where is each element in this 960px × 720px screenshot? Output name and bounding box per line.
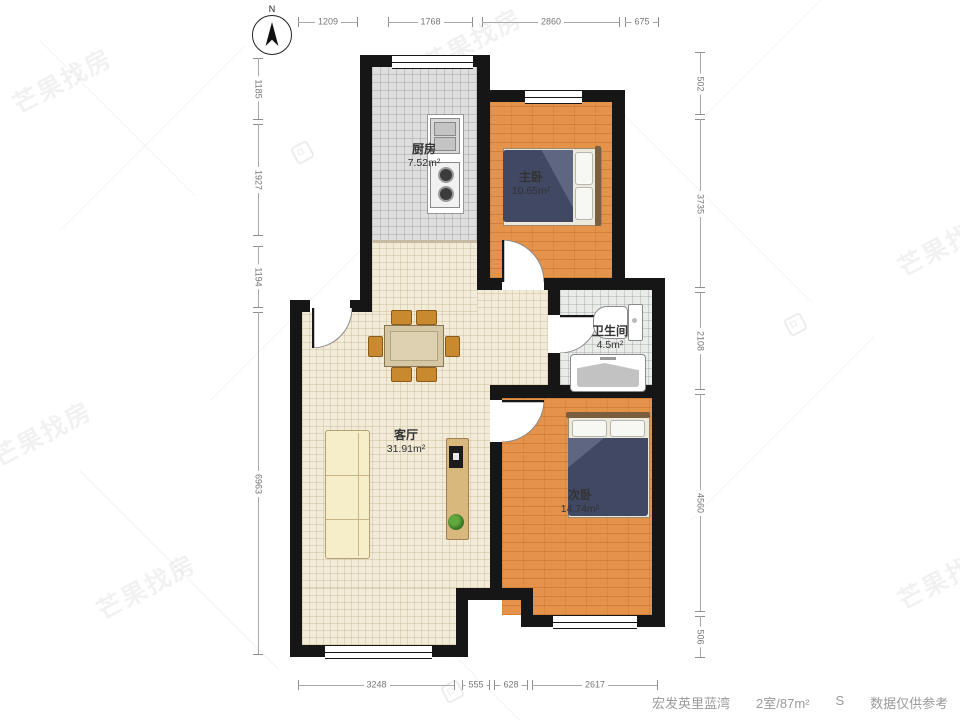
room-area: 10.65m² (489, 185, 573, 198)
room-label-kitchen: 厨房 7.52m² (382, 142, 466, 170)
wall (360, 55, 372, 312)
bathroom-door-opening (548, 315, 560, 353)
watermark-line (700, 0, 870, 121)
second-bedroom-window (553, 615, 637, 629)
unit-summary: 2室/87m² (756, 693, 809, 712)
kitchen-window (392, 55, 473, 69)
watermark-logo-icon (290, 140, 316, 166)
dim-left-2: 1927 (252, 124, 264, 236)
north-arrow-icon (264, 22, 281, 46)
community-name: 宏发英里蓝湾 (652, 693, 730, 712)
dining-chair (368, 336, 383, 357)
room-label-bathroom: 卫生间 4.5m² (568, 324, 652, 352)
room-area: 31.91m² (364, 443, 448, 456)
watermark-text: 芒果找房 (891, 202, 960, 284)
hallway-floor (372, 243, 477, 312)
master-window (525, 90, 582, 104)
pillow (610, 420, 645, 437)
dim-bottom-3: 628 (494, 679, 528, 691)
dim-right-5: 506 (694, 616, 706, 658)
plant-icon (448, 514, 464, 530)
dining-chair (445, 336, 460, 357)
watermark-line (690, 336, 875, 521)
master-door-arc (502, 240, 544, 282)
room-name: 次卧 (538, 488, 622, 503)
bathtub (570, 354, 646, 392)
watermark-text: 芒果找房 (6, 39, 118, 121)
dim-right-1: 502 (694, 52, 706, 115)
room-name: 卫生间 (568, 324, 652, 339)
dining-chair (416, 310, 437, 325)
room-name: 主卧 (489, 170, 573, 185)
kitchen-threshold (372, 240, 477, 243)
footer: 宏发英里蓝湾 2室/87m² S 数据仅供参考 (652, 693, 948, 712)
dim-left-4: 6963 (252, 312, 264, 655)
dim-left-1: 1185 (252, 58, 264, 120)
living-room-floor (302, 588, 456, 645)
floorplan-canvas: 芒果找房 芒果找房 芒果找房 芒果找房 芒果找房 芒果找房 芒果找房 N (0, 0, 960, 720)
dim-bottom-2: 555 (462, 679, 490, 691)
room-label-master: 主卧 10.65m² (489, 170, 573, 198)
room-area: 7.52m² (382, 157, 466, 170)
watermark-text: 芒果找房 (90, 545, 202, 627)
room-name: 厨房 (382, 142, 466, 157)
compass-circle-icon (252, 15, 292, 55)
dim-top-4: 675 (625, 16, 659, 28)
living-window (325, 645, 432, 659)
dim-right-4: 4560 (694, 394, 706, 612)
room-label-second-bedroom: 次卧 14.74m² (538, 488, 622, 516)
room-name: 客厅 (364, 428, 448, 443)
dim-right-3: 2108 (694, 292, 706, 390)
dining-table (384, 325, 444, 367)
room-label-living: 客厅 31.91m² (364, 428, 448, 456)
room-area: 4.5m² (568, 339, 652, 352)
dim-left-3: 1194 (252, 246, 264, 308)
second-bedroom-door-opening (490, 400, 502, 442)
wall (290, 300, 302, 657)
entrance-door-arc (312, 308, 352, 348)
second-bedroom-door-arc (502, 400, 544, 442)
second-bed-headboard (566, 412, 650, 418)
dim-right-2: 3735 (694, 119, 706, 288)
dining-chair (391, 310, 412, 325)
pillow (575, 187, 593, 220)
tv-icon (449, 446, 463, 468)
watermark-logo-icon (783, 312, 809, 338)
orientation-label: S (835, 693, 844, 712)
watermark-line (79, 470, 278, 669)
disclaimer-text: 数据仅供参考 (870, 693, 948, 712)
room-area: 14.74m² (538, 503, 622, 516)
dim-top-3: 2860 (482, 16, 620, 28)
pillow (575, 152, 593, 185)
compass: N (246, 4, 298, 55)
master-bed-headboard (595, 146, 601, 226)
dim-top-1: 1209 (298, 16, 358, 28)
dining-chair (416, 367, 437, 382)
watermark-text: 芒果找房 (0, 392, 98, 474)
wall (612, 90, 625, 290)
dim-top-2: 1768 (388, 16, 473, 28)
dim-bottom-1: 3248 (298, 679, 455, 691)
dining-chair (391, 367, 412, 382)
pillow (572, 420, 607, 437)
watermark-text: 芒果找房 (891, 535, 960, 617)
dim-bottom-4: 2617 (532, 679, 658, 691)
wall (652, 278, 665, 627)
compass-north-label: N (246, 4, 298, 14)
